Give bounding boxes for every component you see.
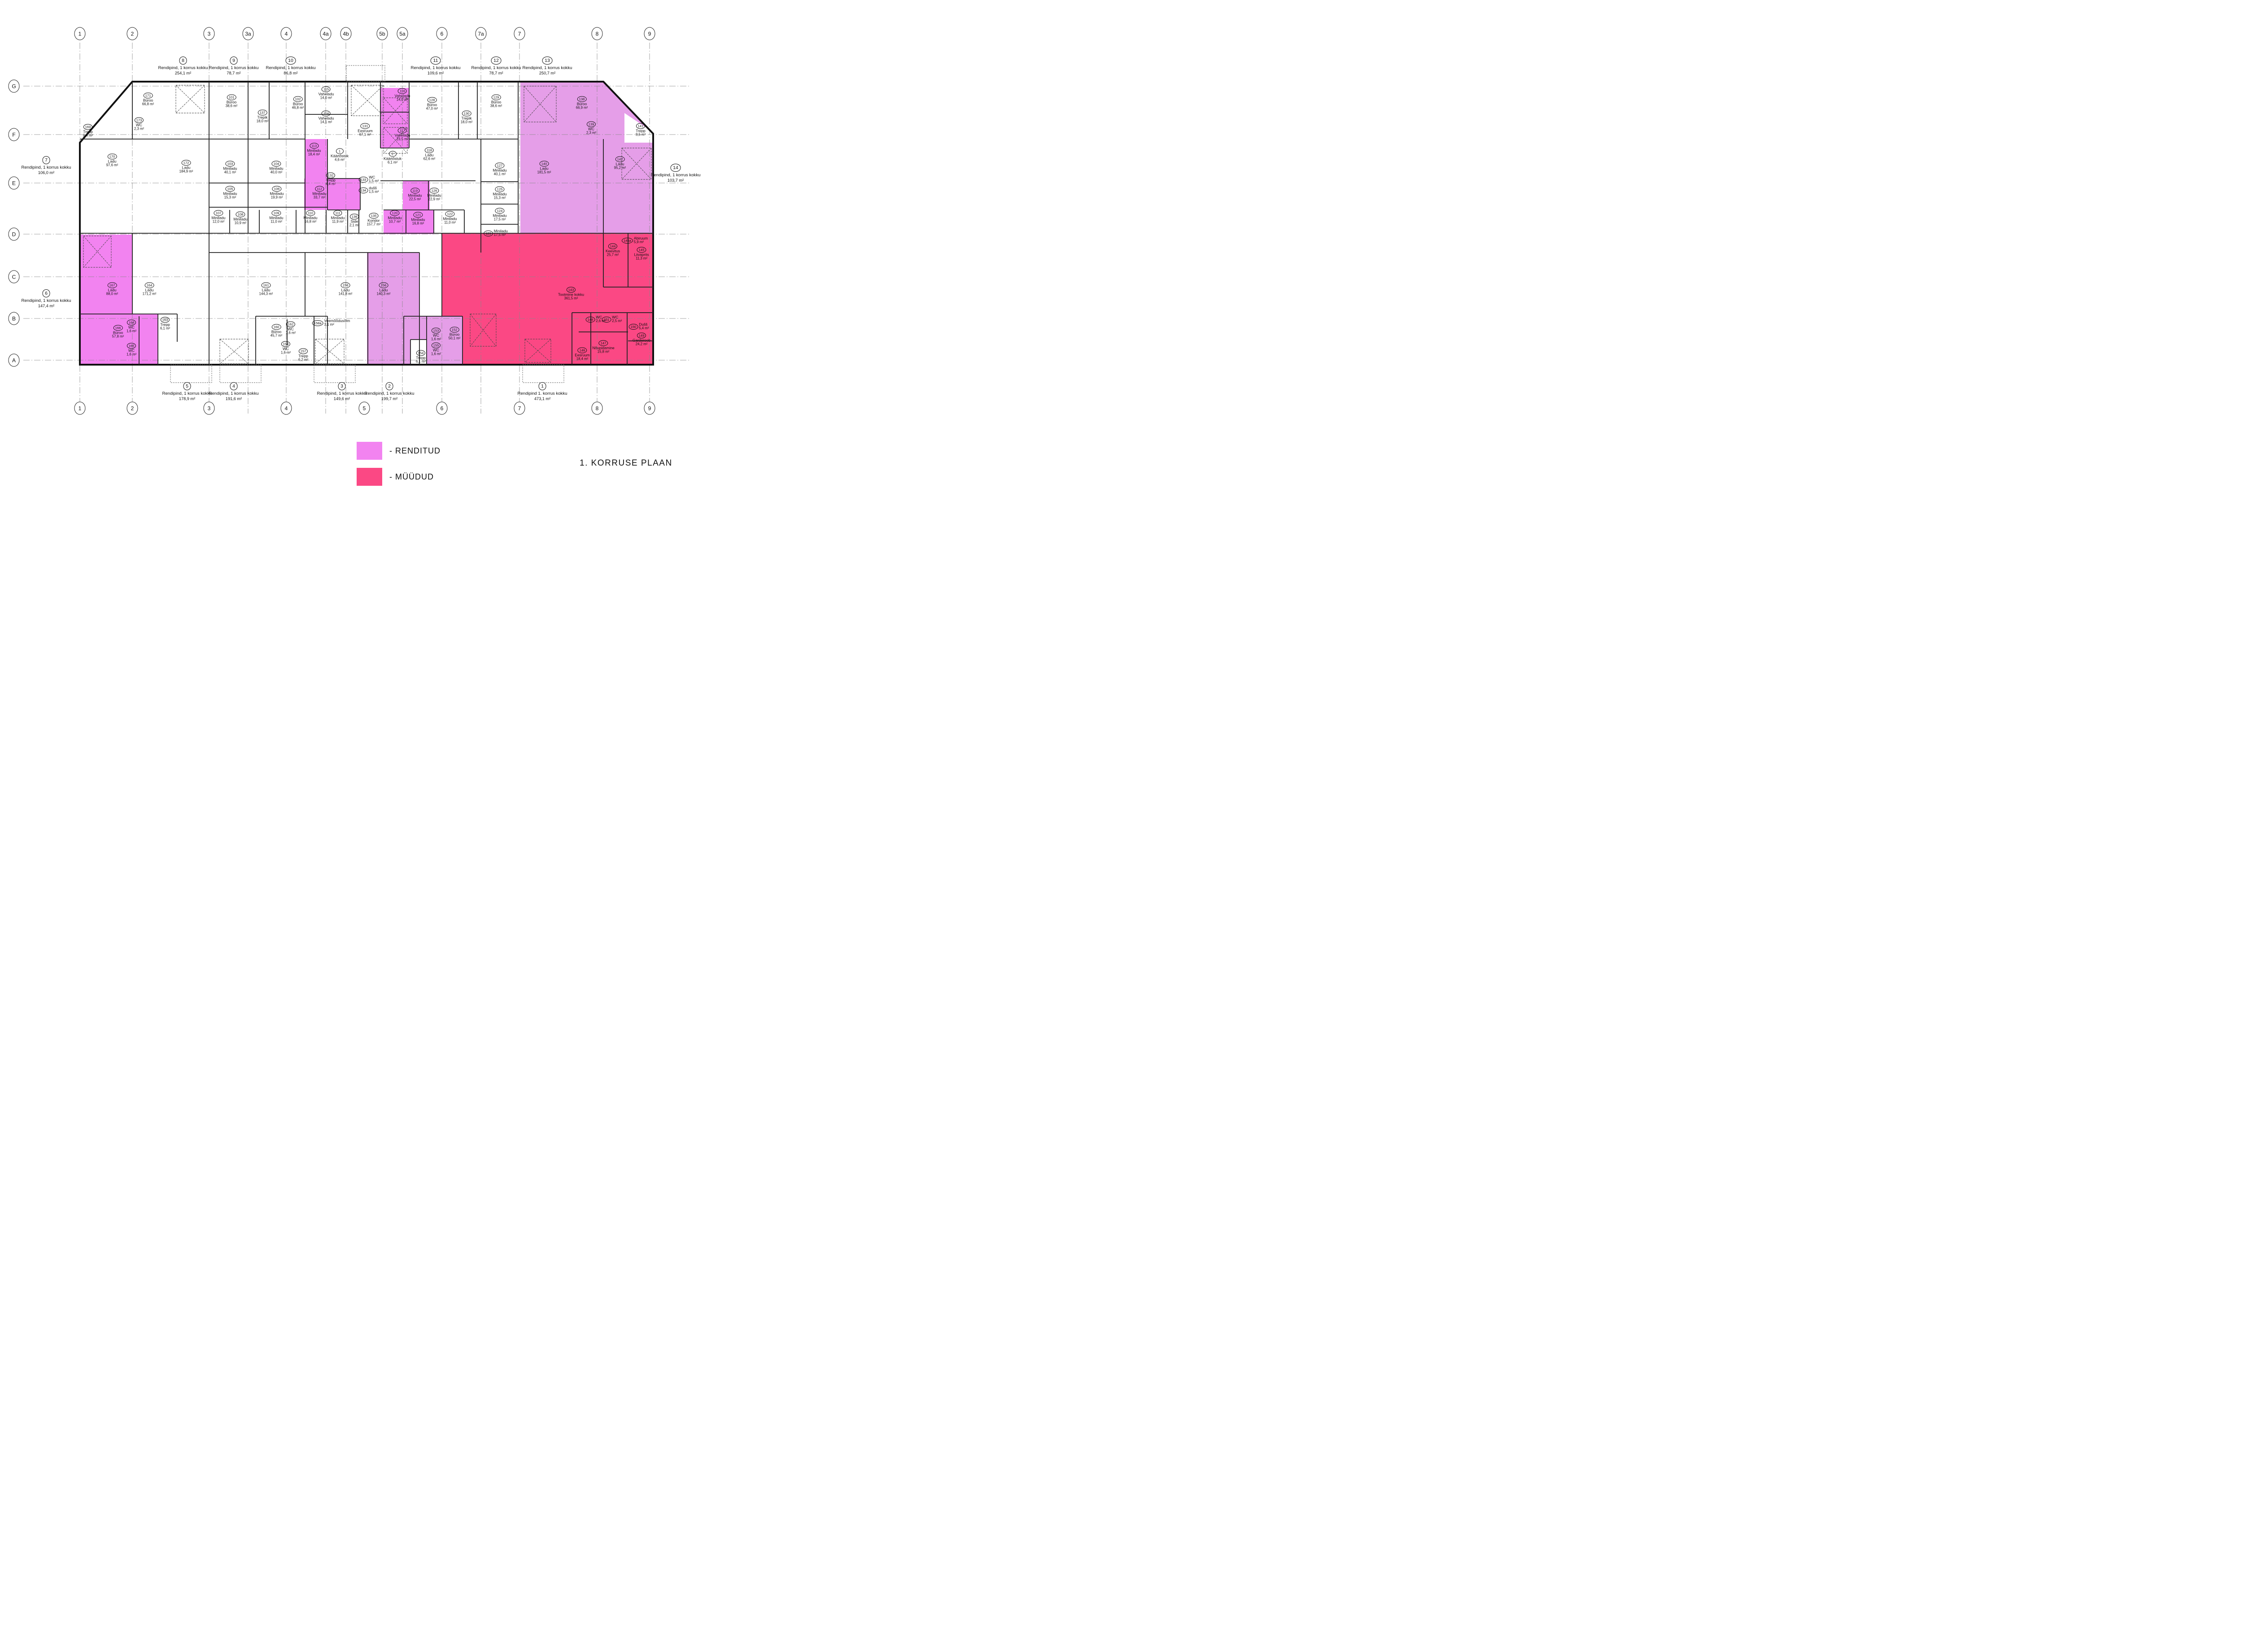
total-label: Rendipind, 1 korrus kokku: [162, 391, 212, 397]
room-area: 5,4 m²: [639, 327, 649, 331]
room-label-115: 115Vaheladu14,0 m²: [319, 86, 334, 100]
room-text: Miniladu16,8 m²: [303, 216, 317, 224]
room-area: 8,5 m²: [636, 133, 646, 137]
room-area: 97,6 m²: [106, 164, 118, 168]
grid-column-top-4a: 4a: [320, 27, 332, 40]
room-label-118: 118Ladu62,6 m²: [423, 147, 435, 161]
room-text: Miniladu17,5 m²: [494, 229, 508, 237]
room-area: 6,1 m²: [416, 360, 426, 364]
room-area: 17,5 m²: [494, 218, 506, 222]
grid-column-top-5b: 5b: [377, 27, 388, 40]
room-label-163: 163Trepp6,1 m²: [160, 317, 170, 331]
grid-row-C: C: [9, 270, 20, 283]
room-label-147: 147Nõupidamine15,8 m²: [592, 340, 614, 354]
total-callout-1: 1Rendipind 1. korrus kokku473,1 m²: [518, 382, 567, 401]
room-text: Miniladu12,0 m²: [211, 216, 225, 224]
room-area: 3,1 m²: [324, 323, 334, 327]
page-title: 1. KORRUSE PLAAN: [580, 458, 672, 468]
room-area: 18,0 m²: [257, 120, 268, 124]
room-text: Ladu144,3 m²: [259, 288, 273, 296]
grid-column-top-3a: 3a: [243, 27, 254, 40]
room-label-166: 166Büroo57,8 m²: [112, 325, 124, 339]
room-area: 184,9 m²: [179, 170, 193, 174]
total-number: 8: [179, 57, 187, 65]
room-text: Miniladu11,0 m²: [443, 217, 457, 225]
total-area: 191,6 m²: [226, 397, 242, 402]
legend-sold-label: - MÜÜDUD: [389, 472, 434, 482]
room-area: 1,6 m²: [281, 351, 291, 355]
total-number: 13: [542, 57, 553, 65]
grid-row-E: E: [9, 177, 20, 190]
room-label-128: 128Büroo47,0 m²: [426, 97, 438, 111]
total-number: 14: [670, 164, 681, 172]
room-text: Ladu171,2 m²: [143, 288, 157, 296]
room-area: 6,1 m²: [160, 327, 170, 331]
room-area: 18,0 m²: [461, 121, 472, 125]
room-area: 141,8 m²: [339, 292, 353, 296]
room-label-159: 159WC1,6 m²: [281, 341, 291, 355]
room-label-132: 132Trepp4,4 m²: [326, 172, 336, 186]
room-text: WC1,6 m²: [281, 347, 291, 355]
grid-column-top-7a: 7a: [476, 27, 487, 40]
room-text: Ladu88,0 m²: [106, 288, 118, 296]
room-area: 40,1 m²: [494, 173, 506, 177]
grid-column-top-7: 7: [514, 27, 525, 40]
grid-column-bottom-6: 6: [436, 402, 448, 415]
room-area: 15,8 m²: [598, 350, 609, 354]
total-number: 2: [385, 382, 393, 390]
room-label-141: 141Trepp8,5 m²: [636, 123, 646, 137]
room-text: Trepp6,1 m²: [416, 356, 426, 364]
room-area: 14,1 m²: [320, 121, 332, 125]
total-label: Rendipind, 1 korrus kokku: [22, 298, 71, 304]
room-label-167: 167Ladu88,0 m²: [106, 282, 118, 296]
room-label-168: 168WC1,6 m²: [127, 319, 136, 333]
room-label-155: 155WC1,6 m²: [431, 342, 441, 356]
total-number: 7: [42, 156, 50, 164]
room-area: 4,4 m²: [326, 183, 336, 187]
grid-row-A: A: [9, 354, 20, 367]
total-callout-12: 12Rendipind, 1 korrus kokku78,7 m²: [471, 57, 521, 76]
total-number: 5: [183, 382, 191, 390]
room-area: 11,9 m²: [332, 220, 344, 224]
total-label: Rendipind, 1 korrus kokku: [209, 65, 259, 71]
room-label-122: 122Miniladu11,0 m²: [443, 211, 457, 225]
room-area: 1,5 m²: [369, 190, 379, 194]
room-label-151: 151WC2,5 m²: [602, 315, 622, 323]
room-text: Büroo66,9 m²: [576, 102, 588, 110]
room-area: 8,4 m²: [83, 134, 93, 138]
total-callout-7: 7Rendipind, 1 korrus kokku106,0 m²: [22, 156, 71, 175]
room-area: 11,0 m²: [444, 221, 456, 225]
room-label-173: 173WC2,3 m²: [134, 117, 144, 131]
room-label-164: 164Ladu171,2 m²: [143, 282, 157, 296]
total-callout-11: 11Rendipind, 1 korrus kokku109,6 m²: [411, 57, 461, 76]
room-label-139: 139WC2,3 m²: [586, 121, 596, 135]
room-text: Büroo57,8 m²: [112, 331, 124, 339]
grid-row-B: B: [9, 312, 20, 325]
room-text: Vaheladu14,1 m²: [319, 116, 334, 124]
room-area: 50,1 m²: [449, 337, 460, 341]
room-label-117: 117Vaheladu23,5 m²: [395, 127, 410, 141]
total-callout-5: 5Rendipind, 1 korrus kokku178,9 m²: [162, 382, 212, 401]
grid-column-top-9: 9: [644, 27, 655, 40]
room-label-131: 131Eesruum67,1 m²: [358, 123, 373, 137]
total-label: Rendipind, 1 korrus kokku: [411, 65, 461, 71]
plan-drawing: [0, 0, 703, 497]
room-area: 66,8 m²: [142, 103, 154, 107]
total-label: Rendipind, 1 korrus kokku: [22, 165, 71, 170]
room-label-162: 162WC1,6 m²: [286, 321, 296, 335]
room-text: Miniladu10,7 m²: [388, 216, 401, 224]
room-area: 2,5 m²: [612, 319, 622, 323]
total-label: Rendipind, 1 korrus kokku: [266, 65, 316, 71]
room-text: Ladu181,5 m²: [537, 166, 551, 174]
room-area: 4,6 m²: [335, 158, 345, 162]
total-area: 86,8 m²: [284, 71, 297, 76]
room-text: Miniladu15,3 m²: [223, 192, 237, 200]
room-area: 1,6 m²: [127, 330, 136, 334]
room-label-1: 1Käärtõstuk4,6 m²: [331, 148, 349, 162]
room-number: 148: [586, 317, 595, 323]
room-text: Trepp6,2 m²: [298, 354, 308, 362]
room-label-101: 101Büroo38,6 m²: [226, 94, 237, 108]
grid-column-top-5a: 5a: [397, 27, 408, 40]
room-number: 134: [359, 187, 368, 193]
room-area: 16,8 m²: [412, 222, 424, 226]
total-area: 178,9 m²: [179, 397, 195, 402]
room-area: 19,9 m²: [271, 196, 283, 200]
room-text: Miniladu11,9 m²: [331, 216, 345, 224]
room-label-142: 142Ladu95,2 m²: [614, 156, 626, 170]
grid-column-top-1: 1: [74, 27, 86, 40]
room-text: dušš1,5 m²: [369, 186, 379, 194]
room-text: Ladu141,8 m²: [339, 288, 353, 296]
total-area: 147,4 m²: [38, 304, 54, 309]
room-area: 11,3 m²: [636, 257, 647, 261]
total-callout-13: 13Rendipind, 1 korrus kokku250,7 m²: [523, 57, 572, 76]
room-text: Büroo50,1 m²: [449, 332, 460, 340]
room-area: 18,4 m²: [308, 153, 320, 157]
room-label-137: 137Trepik18,0 m²: [257, 109, 268, 123]
grid-column-bottom-3: 3: [204, 402, 215, 415]
legend-rented-label: - RENDITUD: [389, 446, 441, 456]
room-area: 33,7 m²: [314, 196, 325, 200]
room-area: 38,6 m²: [226, 105, 237, 109]
room-label-171: 171Büroo66,8 m²: [142, 92, 154, 106]
room-text: Trepp6,1 m²: [160, 323, 170, 331]
room-area: 22,9 m²: [428, 198, 440, 202]
room-label-102: 102Büroo46,8 m²: [292, 96, 304, 110]
room-label-111: 111Miniladu11,9 m²: [331, 210, 345, 224]
room-area: 1,6 m²: [431, 353, 441, 357]
room-label-140: 140Ladu181,5 m²: [537, 161, 551, 174]
room-area: 88,0 m²: [106, 292, 118, 296]
room-label-145a: 145aAbiruum5,9 m²: [622, 236, 648, 244]
room-label-129: 129Büroo38,6 m²: [490, 94, 502, 108]
grid-row-D: D: [9, 228, 20, 241]
room-text: WC1,6 m²: [431, 333, 441, 341]
room-text: Büroo66,8 m²: [142, 98, 154, 106]
room-text: Dušš5,4 m²: [639, 323, 649, 331]
room-text: WC2,3 m²: [134, 123, 144, 131]
room-label-112: 112Miniladu33,7 m²: [312, 186, 326, 200]
legend-rented-swatch: [357, 442, 382, 460]
total-number: 10: [285, 57, 296, 65]
room-label-2: 2Käärtõstuk6,1 m²: [384, 151, 401, 165]
total-callout-4: 4Rendipind, 1 korrus kokku191,6 m²: [209, 382, 259, 401]
grid-column-top-6: 6: [436, 27, 448, 40]
room-text: Miniladu10,9 m²: [233, 217, 247, 225]
total-callout-14: 14Rendipind, 1 korrus kokku103,7 m²: [651, 164, 701, 183]
room-text: WC2,5 m²: [612, 315, 622, 323]
room-text: Garderoob24,2 m²: [633, 338, 650, 346]
room-area: 15,3 m²: [224, 196, 236, 200]
room-label-170: 170Ladu97,6 m²: [106, 153, 118, 167]
room-area: 15,3 m²: [494, 196, 506, 201]
total-number: 9: [230, 57, 238, 65]
room-area: 1,5 m²: [369, 179, 379, 183]
grid-row-G: G: [9, 80, 20, 93]
legend-sold-swatch: [357, 468, 382, 486]
room-number: 151: [602, 317, 611, 323]
room-label-145: 145Liivaprits11,3 m²: [634, 247, 649, 261]
room-area: 6,2 m²: [298, 358, 308, 362]
room-label-127: 127Miniladu40,1 m²: [493, 162, 506, 176]
room-area: 24,2 m²: [636, 343, 647, 347]
room-text: Miniladu17,5 m²: [493, 214, 506, 222]
room-area: 40,1 m²: [224, 171, 236, 175]
room-area: 38,6 m²: [490, 105, 502, 109]
room-label-165: 165WC1,6 m²: [127, 343, 136, 357]
room-label-146: 146Eesruum18,4 m²: [575, 347, 590, 361]
room-text: WC1,6 m²: [286, 327, 296, 335]
grid-row-F: F: [9, 128, 20, 141]
total-area: 78,7 m²: [227, 71, 240, 76]
room-label-130: 130Trepik18,0 m²: [461, 110, 472, 124]
total-callout-6: 6Rendipind, 1 korrus kokku147,4 m²: [22, 289, 71, 309]
room-label-160: 160Büroo45,7 m²: [271, 324, 282, 338]
room-area: 140,3 m²: [377, 292, 391, 296]
grid-column-bottom-2: 2: [127, 402, 138, 415]
room-text: Miniladu15,3 m²: [493, 192, 506, 200]
room-label-116: 116Vaheladu14,0 m²: [395, 88, 410, 102]
room-text: WC1,6 m²: [127, 325, 136, 333]
room-area: 23,5 m²: [397, 138, 408, 142]
grid-column-bottom-1: 1: [74, 402, 86, 415]
room-label-125: 125Miniladu15,3 m²: [493, 186, 506, 200]
room-label-123: 123Miniladu17,5 m²: [484, 229, 508, 237]
grid-column-top-4b: 4b: [340, 27, 352, 40]
grid-column-top-4: 4: [281, 27, 292, 40]
room-area: 47,0 m²: [426, 107, 438, 111]
room-text: Nõupidamine15,8 m²: [592, 346, 614, 354]
grid-column-bottom-8: 8: [592, 402, 603, 415]
room-text: WC1,6 m²: [431, 348, 441, 356]
room-text: Miniladu19,9 m²: [270, 192, 284, 200]
room-text: Ladu184,9 m²: [179, 166, 193, 174]
room-text: WC2,3 m²: [586, 127, 596, 135]
room-text: Büroo38,6 m²: [226, 100, 237, 108]
room-area: 62,6 m²: [423, 157, 435, 161]
room-area: 46,8 m²: [292, 106, 304, 110]
grid-column-bottom-5: 5: [359, 402, 370, 415]
room-area: 144,3 m²: [259, 292, 273, 296]
total-area: 473,1 m²: [534, 397, 550, 402]
room-label-158: 158Ladu141,8 m²: [339, 282, 353, 296]
room-area: 5,9 m²: [634, 240, 644, 244]
room-label-161: 161Ladu144,3 m²: [259, 282, 273, 296]
total-number: 11: [431, 57, 441, 65]
room-text: Trepp8,4 m²: [83, 130, 93, 138]
room-text: Trepp8,5 m²: [636, 129, 646, 137]
room-text: Miniladu40,0 m²: [269, 166, 283, 174]
room-text: Ladu62,6 m²: [423, 153, 435, 161]
room-text: Eesruum67,1 m²: [358, 129, 373, 137]
total-callout-10: 10Rendipind, 1 korrus kokku86,8 m²: [266, 57, 316, 76]
room-label-150: 150Dušš5,4 m²: [629, 323, 649, 331]
room-label-124: 124Miniladu17,5 m²: [493, 208, 506, 222]
total-number: 6: [42, 289, 50, 297]
room-label-133: 133WC1,5 m²: [359, 175, 379, 183]
room-label-103: 103Miniladu40,1 m²: [223, 161, 237, 174]
legend: - RENDITUD - MÜÜDUD: [357, 442, 441, 494]
room-text: Tootmine kokku361,5 m²: [558, 292, 584, 301]
room-area: 2,3 m²: [586, 131, 596, 135]
total-area: 109,6 m²: [428, 71, 444, 76]
room-text: Trepp4,4 m²: [326, 178, 336, 186]
total-callout-8: 8Rendipind, 1 korrus kokku254,1 m²: [158, 57, 208, 76]
grid-column-bottom-4: 4: [281, 402, 292, 415]
room-area: 2,3 m²: [134, 127, 144, 131]
room-label-109: 109Miniladu11,0 m²: [269, 210, 283, 224]
room-text: Veemõõdusõlm3,1 m²: [324, 319, 350, 327]
room-area: 57,8 m²: [112, 335, 124, 339]
room-text: WC1,5 m²: [369, 175, 379, 183]
room-label-135: 135Koridor157,7 m²: [367, 213, 381, 227]
total-area: 78,7 m²: [489, 71, 503, 76]
room-text: Eesruum18,4 m²: [575, 353, 590, 361]
room-area: 14,0 m²: [320, 96, 332, 100]
total-callout-9: 9Rendipind, 1 korrus kokku78,7 m²: [209, 57, 259, 76]
room-text: Vaheladu14,0 m²: [319, 92, 334, 100]
room-text: Side2,1 m²: [349, 219, 359, 227]
room-text: Vaheladu14,0 m²: [395, 94, 410, 102]
total-number: 3: [338, 382, 346, 390]
floor-plan: - RENDITUD - MÜÜDUD 1. KORRUSE PLAAN 123…: [0, 0, 703, 497]
room-area: 10,7 m²: [389, 220, 401, 224]
grid-column-bottom-7: 7: [514, 402, 525, 415]
legend-rented-row: - RENDITUD: [357, 442, 441, 460]
room-text: Ladu95,2 m²: [614, 162, 626, 170]
room-label-113: 113Miniladu18,4 m²: [307, 143, 321, 157]
room-number: 123: [484, 231, 493, 236]
room-area: 1,6 m²: [127, 353, 136, 357]
room-area: 14,0 m²: [397, 98, 408, 102]
room-area: 16,8 m²: [305, 220, 316, 224]
room-number: 150: [629, 324, 638, 330]
room-area: 1,6 m²: [286, 331, 296, 336]
room-text: Ladu97,6 m²: [106, 159, 118, 167]
room-label-126: 126Miniladu22,9 m²: [427, 187, 441, 201]
room-label-108: 108Miniladu10,9 m²: [233, 211, 247, 225]
room-text: Abiruum5,9 m²: [634, 236, 648, 244]
room-text: Miniladu18,4 m²: [307, 148, 321, 157]
total-area: 106,0 m²: [38, 170, 54, 176]
room-text: Miniladu22,9 m²: [427, 193, 441, 201]
room-label-110: 110Miniladu16,8 m²: [303, 210, 317, 224]
room-label-169: 169Trepp8,4 m²: [83, 124, 93, 138]
room-text: Miniladu16,8 m²: [411, 218, 425, 226]
room-text: Koridor157,7 m²: [367, 218, 381, 227]
room-area: 95,2 m²: [614, 166, 626, 170]
room-label-149: 149Garderoob24,2 m²: [633, 332, 650, 346]
room-label-107: 107Miniladu12,0 m²: [211, 210, 225, 224]
room-label-172: 172Ladu184,9 m²: [179, 160, 193, 174]
total-label: Rendipind, 1 korrus kokku: [158, 65, 208, 71]
total-area: 149,6 m²: [334, 397, 350, 402]
room-area: 40,0 m²: [271, 171, 282, 175]
room-text: Miniladu33,7 m²: [312, 192, 326, 200]
room-text: Büroo38,6 m²: [490, 100, 502, 108]
grid-column-top-8: 8: [592, 27, 603, 40]
room-label-154: 154Trepp6,1 m²: [416, 350, 426, 364]
room-area: 22,5 m²: [409, 198, 421, 202]
total-label: Rendipind, 1 korrus kokku: [365, 391, 415, 397]
room-text: Trepik18,0 m²: [461, 116, 472, 124]
room-area: 361,5 m²: [564, 297, 578, 301]
total-area: 250,7 m²: [539, 71, 555, 76]
room-label-119: 119Miniladu22,5 m²: [408, 187, 422, 201]
room-label-144: 144Keevitus25,7 m²: [606, 243, 620, 257]
room-text: Liivaprits11,3 m²: [634, 253, 649, 261]
room-area: 45,7 m²: [271, 334, 282, 338]
room-area: 12,0 m²: [213, 220, 224, 224]
room-label-157: 157Trepp6,2 m²: [298, 348, 308, 362]
total-area: 199,7 m²: [381, 397, 397, 402]
room-text: Büroo47,0 m²: [426, 103, 438, 111]
room-label-121: 121Miniladu16,8 m²: [411, 212, 425, 226]
room-area: 171,2 m²: [143, 292, 157, 296]
room-text: Büroo45,7 m²: [271, 330, 282, 338]
total-label: Rendipind, 1 korrus kokku: [209, 391, 259, 397]
room-text: Käärtõstuk6,1 m²: [384, 157, 401, 165]
room-text: Keevitus25,7 m²: [606, 249, 620, 257]
room-text: Büroo46,8 m²: [292, 102, 304, 110]
total-label: Rendipind, 1 korrus kokku: [651, 173, 701, 178]
room-text: Ladu140,3 m²: [377, 288, 391, 296]
room-area: 17,5 m²: [494, 233, 506, 237]
legend-sold-row: - MÜÜDUD: [357, 468, 441, 486]
room-label-153: 153WC1,6 m²: [431, 327, 441, 341]
total-number: 1: [538, 382, 546, 390]
room-number: 158a: [312, 320, 323, 326]
room-label-104: 104Miniladu40,0 m²: [269, 161, 283, 174]
total-number: 4: [230, 382, 238, 390]
room-text: WC1,6 m²: [127, 349, 136, 357]
total-area: 254,1 m²: [175, 71, 191, 76]
room-label-136: 136Side2,1 m²: [349, 214, 359, 227]
room-area: 6,1 m²: [388, 161, 397, 165]
room-label-158a: 158aVeemõõdusõlm3,1 m²: [312, 319, 350, 327]
room-text: Miniladu40,1 m²: [223, 166, 237, 174]
room-label-138: 138Büroo66,9 m²: [576, 96, 588, 110]
room-area: 25,7 m²: [607, 253, 619, 257]
total-callout-2: 2Rendipind, 1 korrus kokku199,7 m²: [365, 382, 415, 401]
room-label-156: 156Ladu140,3 m²: [377, 282, 391, 296]
grid-column-top-2: 2: [127, 27, 138, 40]
room-text: Miniladu40,1 m²: [493, 168, 506, 176]
